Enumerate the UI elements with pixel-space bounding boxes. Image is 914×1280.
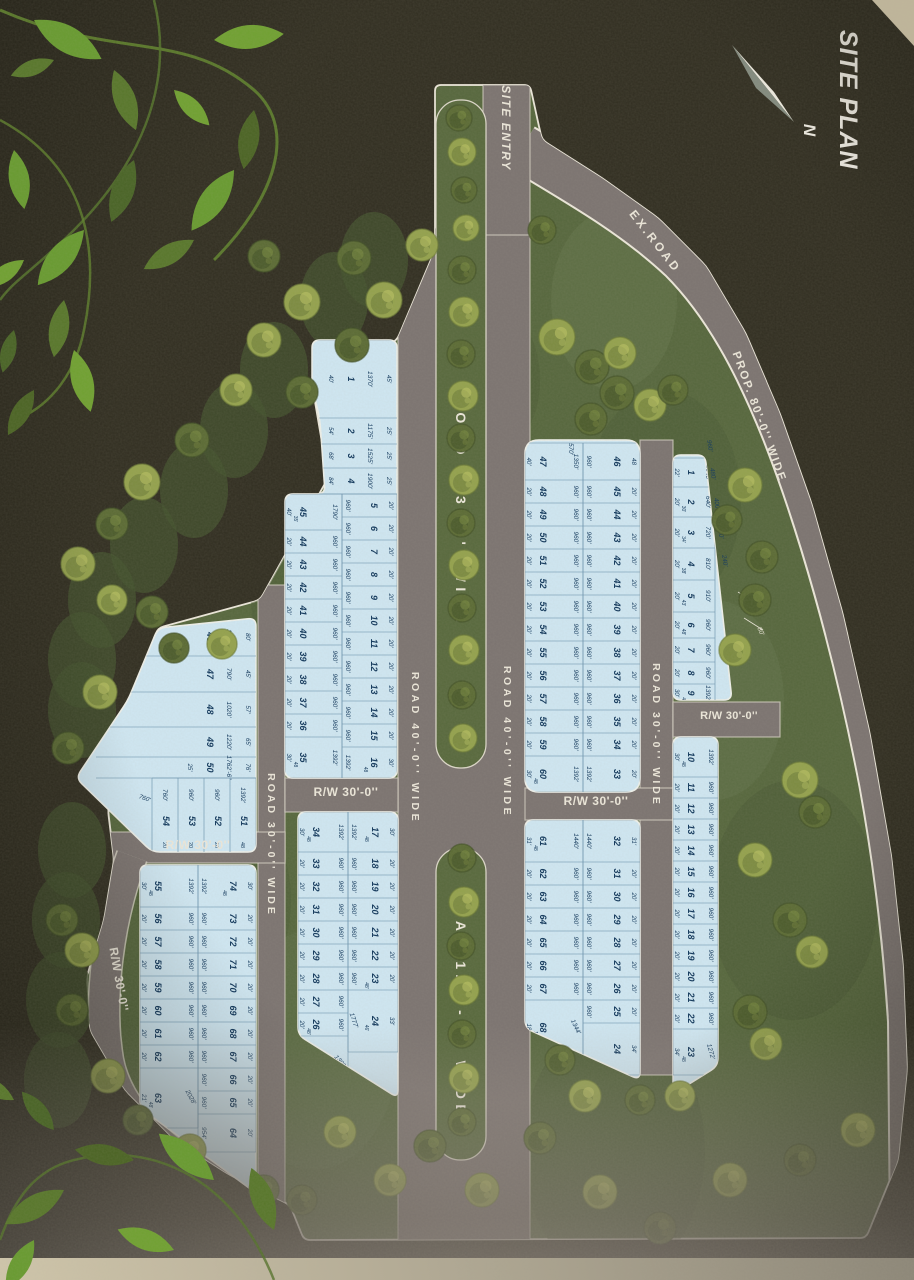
rotated-plan-container: 20'5960'20'6960'20'7960'20'8960'20'9960'…: [0, 0, 914, 1280]
site-plan-photo: 20'5960'20'6960'20'7960'20'8960'20'9960'…: [0, 0, 914, 1280]
site-plan: 20'5960'20'6960'20'7960'20'8960'20'9960'…: [0, 0, 914, 1280]
photo-grain: [0, 0, 914, 1280]
